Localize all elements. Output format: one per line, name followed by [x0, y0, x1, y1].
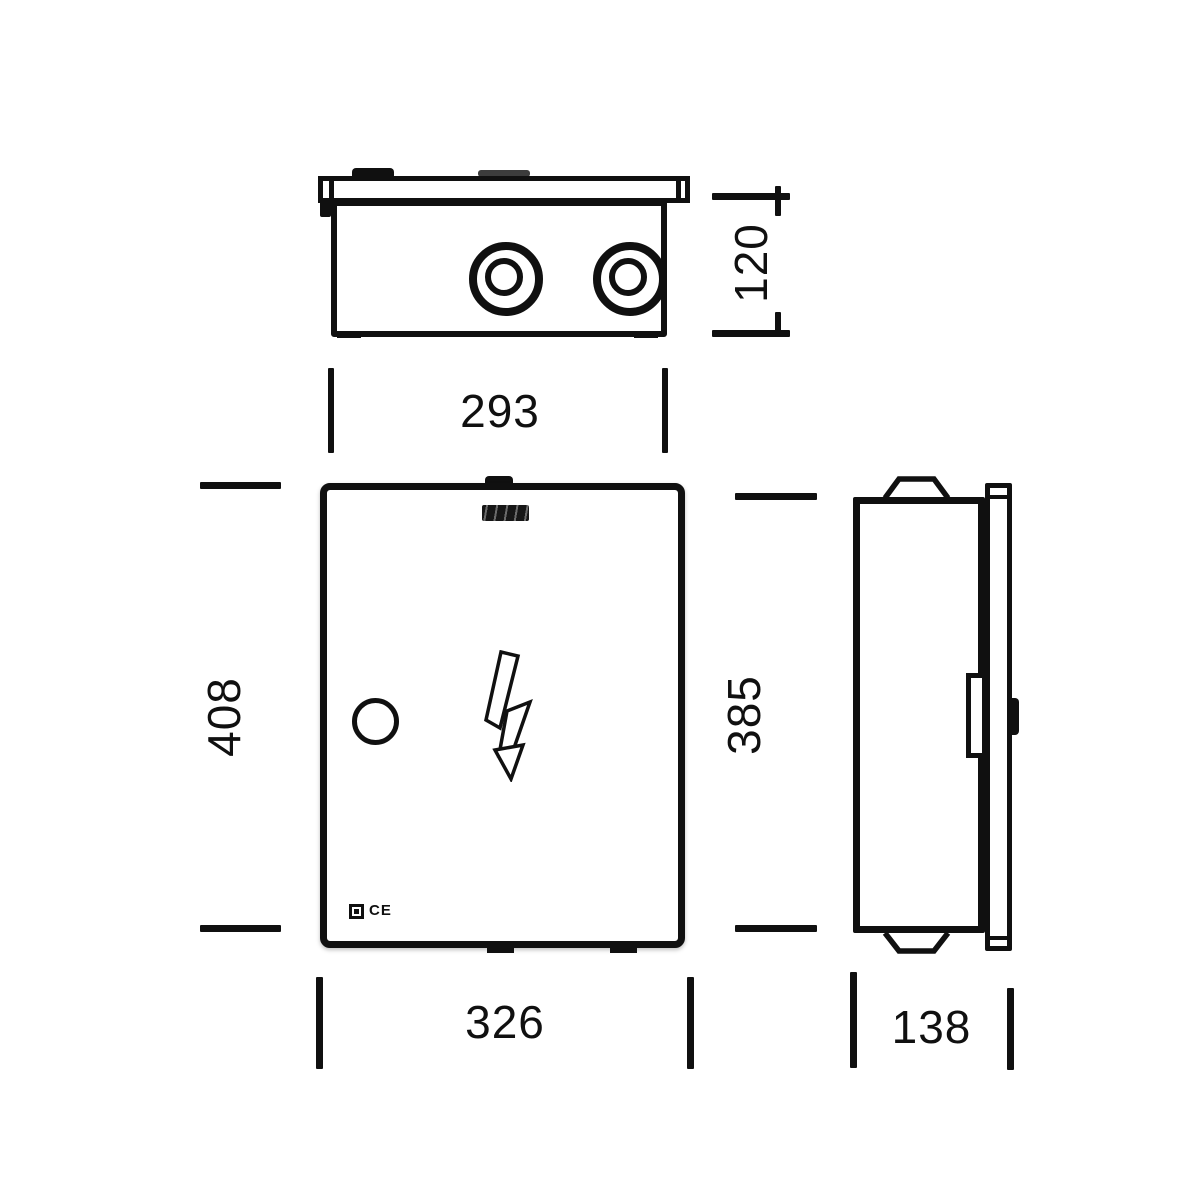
dimension-tick	[328, 368, 334, 453]
dimension-value: 408	[198, 647, 250, 787]
lightning-bolt-icon	[483, 650, 533, 782]
door-lock-icon	[352, 698, 399, 745]
dimension-tick	[200, 925, 281, 932]
dimension-tick	[687, 977, 694, 1069]
dimension-value: 326	[425, 996, 585, 1048]
dimension-value: 385	[718, 645, 770, 785]
class-ii-insulation-icon-inner	[354, 909, 359, 914]
dimension-tick	[200, 482, 281, 489]
dimension-drawing-canvas: 120 293 CE 408 385	[0, 0, 1200, 1200]
dimension-tick	[662, 368, 668, 453]
brand-logo-icon	[482, 505, 529, 521]
side-view-door-panel	[985, 483, 1012, 951]
side-view-door-edge-top	[988, 495, 1009, 499]
side-view-handle	[966, 673, 987, 758]
side-view-latch-tab	[1011, 698, 1019, 735]
top-view-hinge-tab	[320, 201, 331, 217]
top-view-flange-end-left	[329, 178, 334, 202]
front-view-bottom-tab	[610, 946, 637, 953]
dimension-tick	[316, 977, 323, 1069]
top-view-foot-left	[337, 332, 361, 338]
dimension-value: 120	[726, 208, 776, 318]
dimension-tick	[735, 493, 817, 500]
cable-gland-icon-center	[485, 258, 523, 296]
top-view-foot-right	[634, 332, 658, 338]
dimension-tick	[735, 925, 817, 932]
front-view-bottom-tab	[487, 946, 514, 953]
cable-gland-icon-center	[609, 258, 647, 296]
top-view-flange-end-right	[676, 178, 681, 202]
side-view-mounting-bracket-bottom	[882, 930, 952, 956]
side-view-door-edge-bottom	[988, 936, 1009, 940]
top-view-lid-flange	[318, 176, 690, 203]
ce-mark-label: CE	[369, 902, 392, 919]
dimension-value: 138	[851, 1001, 1012, 1053]
dimension-value: 293	[420, 385, 580, 437]
